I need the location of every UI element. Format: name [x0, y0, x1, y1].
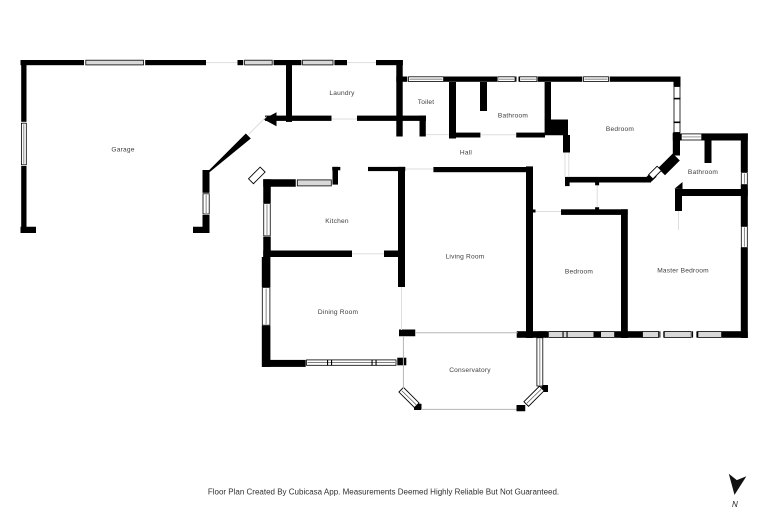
- svg-text:Bedroom: Bedroom: [565, 269, 593, 276]
- svg-text:Dining Room: Dining Room: [318, 309, 359, 316]
- svg-text:Laundry: Laundry: [329, 90, 355, 97]
- svg-text:Bathroom: Bathroom: [688, 169, 718, 176]
- svg-text:Living Room: Living Room: [446, 254, 485, 261]
- svg-text:Kitchen: Kitchen: [325, 218, 349, 225]
- svg-text:Toilet: Toilet: [418, 99, 435, 106]
- svg-text:Garage: Garage: [111, 147, 134, 154]
- svg-text:Master Bedroom: Master Bedroom: [657, 268, 709, 275]
- svg-text:Hall: Hall: [460, 150, 472, 157]
- svg-text:Bathroom: Bathroom: [498, 113, 528, 120]
- svg-text:Conservatory: Conservatory: [449, 367, 491, 374]
- svg-text:N: N: [732, 500, 738, 509]
- svg-text:Bedroom: Bedroom: [606, 126, 634, 133]
- svg-text:Floor Plan Created By Cubicasa: Floor Plan Created By Cubicasa App. Meas…: [208, 488, 559, 497]
